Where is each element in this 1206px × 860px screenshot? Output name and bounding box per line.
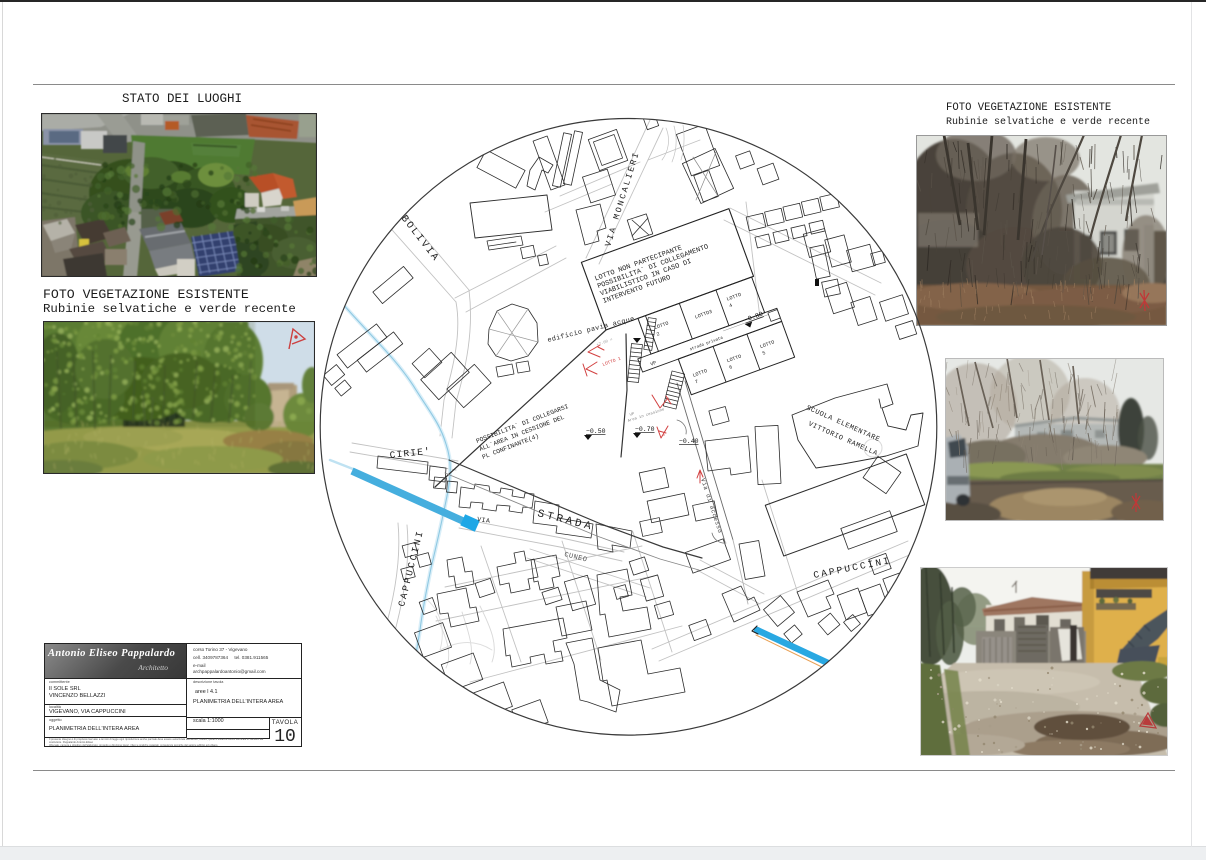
svg-text:−0.50: −0.50 bbox=[586, 428, 606, 435]
svg-text:LOTTO: LOTTO bbox=[726, 354, 742, 365]
svg-text:7: 7 bbox=[694, 379, 699, 386]
svg-text:+7.00 =: +7.00 = bbox=[596, 338, 614, 348]
svg-text:−0.80: −0.80 bbox=[743, 311, 764, 324]
svg-text:LOTTO: LOTTO bbox=[726, 292, 742, 303]
svg-text:5: 5 bbox=[762, 350, 767, 357]
svg-text:−0.40: −0.40 bbox=[679, 438, 699, 445]
svg-text:2: 2 bbox=[656, 331, 661, 338]
svg-text:LOTTO: LOTTO bbox=[692, 368, 708, 379]
svg-text:LOTTO3: LOTTO3 bbox=[694, 309, 713, 321]
svg-text:VIA MONCALIERI: VIA MONCALIERI bbox=[603, 150, 642, 248]
svg-text:c: c bbox=[663, 434, 665, 438]
svg-text:STRADA: STRADA bbox=[536, 508, 595, 534]
svg-text:CUNEO: CUNEO bbox=[563, 551, 588, 564]
svg-text:4: 4 bbox=[728, 303, 733, 310]
svg-text:LOTTO 1: LOTTO 1 bbox=[602, 356, 622, 368]
svg-text:CAPPUCCINI: CAPPUCCINI bbox=[396, 528, 426, 607]
svg-text:BOLIVIA: BOLIVIA bbox=[398, 214, 441, 265]
svg-text:edificio pavia acque: edificio pavia acque bbox=[547, 315, 636, 344]
svg-text:CIRIE': CIRIE' bbox=[389, 446, 431, 461]
svg-text:Via di accesso: Via di accesso bbox=[699, 477, 723, 534]
svg-text:VIA: VIA bbox=[477, 516, 491, 525]
svg-text:−0.70: −0.70 bbox=[635, 426, 655, 433]
svg-text:CAPPUCCINI: CAPPUCCINI bbox=[812, 555, 892, 581]
svg-text:VP: VP bbox=[650, 360, 658, 368]
svg-text:LOTTO: LOTTO bbox=[759, 339, 775, 350]
svg-text:6: 6 bbox=[728, 364, 733, 371]
